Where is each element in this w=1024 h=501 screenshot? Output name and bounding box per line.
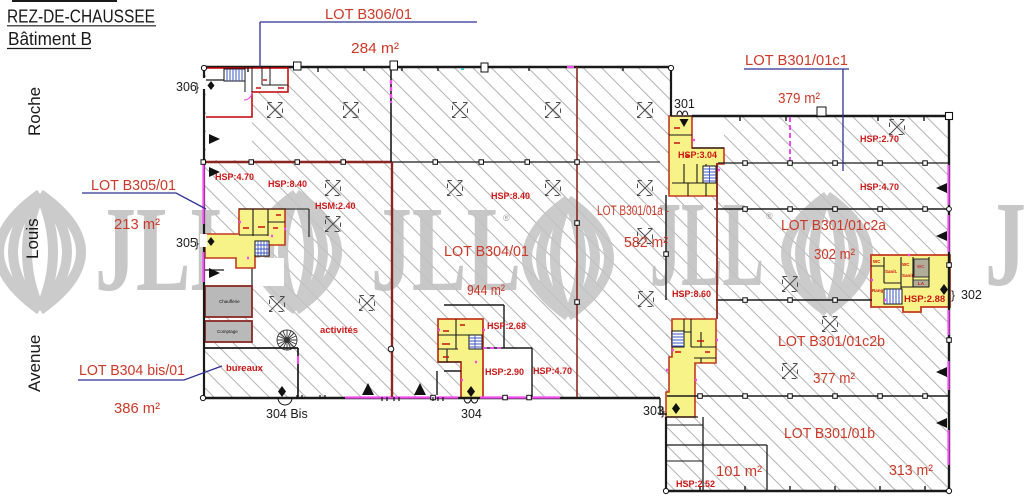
- svg-text:582 m²: 582 m²: [624, 234, 668, 251]
- svg-text:304: 304: [461, 407, 482, 421]
- svg-text:bureaux: bureaux: [226, 363, 264, 374]
- svg-text:HSP:2.68: HSP:2.68: [487, 321, 526, 331]
- svg-text:Comptage: Comptage: [217, 329, 238, 334]
- svg-text:LOT B301/01c1: LOT B301/01c1: [745, 52, 848, 69]
- svg-text:101 m²: 101 m²: [716, 463, 762, 480]
- svg-text:REZ-DE-CHAUSSEE: REZ-DE-CHAUSSEE: [7, 7, 155, 27]
- svg-text:LA: LA: [918, 281, 925, 286]
- svg-text:377 m²: 377 m²: [813, 370, 855, 387]
- svg-text:LOT B304/01: LOT B304/01: [444, 243, 529, 260]
- svg-text:213 m²: 213 m²: [114, 216, 160, 233]
- svg-text:302 m²: 302 m²: [814, 246, 855, 263]
- svg-text:HSM:2.40: HSM:2.40: [315, 201, 356, 211]
- svg-text:}: }: [661, 404, 665, 418]
- svg-text:}: }: [951, 288, 955, 302]
- svg-text:386 m²: 386 m²: [114, 400, 160, 417]
- svg-text:Bâtiment B: Bâtiment B: [8, 29, 92, 49]
- svg-text:HSP:2.90: HSP:2.90: [485, 367, 524, 377]
- svg-text:LOT B301/01c2b: LOT B301/01c2b: [778, 333, 885, 350]
- svg-text:HSP:8.60: HSP:8.60: [672, 289, 711, 299]
- svg-text:LOT B301/01b: LOT B301/01b: [784, 425, 875, 442]
- svg-text:302: 302: [961, 288, 982, 302]
- svg-text:WC: WC: [902, 262, 910, 267]
- svg-text:Sanit.: Sanit.: [885, 269, 897, 274]
- svg-text:HSP:2.52: HSP:2.52: [676, 479, 715, 489]
- svg-text:WC: WC: [917, 264, 925, 269]
- svg-text:HSP:4.70: HSP:4.70: [533, 366, 572, 376]
- svg-text:Rang: Rang: [872, 288, 884, 293]
- svg-text:Roche: Roche: [25, 87, 44, 136]
- svg-text:379 m²: 379 m²: [778, 90, 820, 107]
- svg-text:HSP:8.40: HSP:8.40: [268, 179, 307, 189]
- svg-text:LOT B305/01: LOT B305/01: [91, 177, 176, 194]
- svg-text:284 m²: 284 m²: [351, 40, 399, 57]
- svg-text:305: 305: [176, 236, 197, 250]
- svg-text:304 Bis: 304 Bis: [266, 407, 308, 421]
- svg-text:HSP:4.70: HSP:4.70: [215, 172, 254, 182]
- svg-text:WC: WC: [873, 259, 881, 264]
- svg-text:}: }: [195, 80, 199, 94]
- svg-text:306: 306: [176, 80, 197, 94]
- svg-text:Louis: Louis: [23, 218, 42, 259]
- svg-text:®: ®: [503, 213, 510, 223]
- svg-text:301: 301: [674, 97, 695, 111]
- svg-text:313 m²: 313 m²: [889, 462, 933, 479]
- svg-text:®: ®: [766, 211, 773, 221]
- svg-text:Sanit.: Sanit.: [902, 273, 914, 278]
- svg-text:Chaufferie: Chaufferie: [219, 299, 240, 304]
- svg-text:LOT B301/01a -: LOT B301/01a -: [597, 203, 669, 218]
- svg-text:LOT B304 bis/01: LOT B304 bis/01: [79, 362, 185, 379]
- svg-text:LOT B306/01: LOT B306/01: [325, 6, 412, 23]
- svg-text:Avenue: Avenue: [25, 335, 44, 392]
- svg-text:HSP:2.88: HSP:2.88: [904, 294, 945, 305]
- svg-text:HSP:4.70: HSP:4.70: [860, 182, 899, 192]
- svg-text:}: }: [195, 236, 199, 250]
- svg-text:HSP:2.70: HSP:2.70: [860, 134, 899, 144]
- svg-text:LOT B301/01c2a: LOT B301/01c2a: [781, 217, 887, 234]
- svg-text:JLL: JLL: [985, 177, 1024, 312]
- svg-text:activités: activités: [320, 325, 358, 336]
- svg-text:HSP:8.40: HSP:8.40: [491, 191, 530, 201]
- svg-text:HSP:3.04: HSP:3.04: [678, 150, 717, 160]
- svg-text:944 m²: 944 m²: [467, 282, 505, 299]
